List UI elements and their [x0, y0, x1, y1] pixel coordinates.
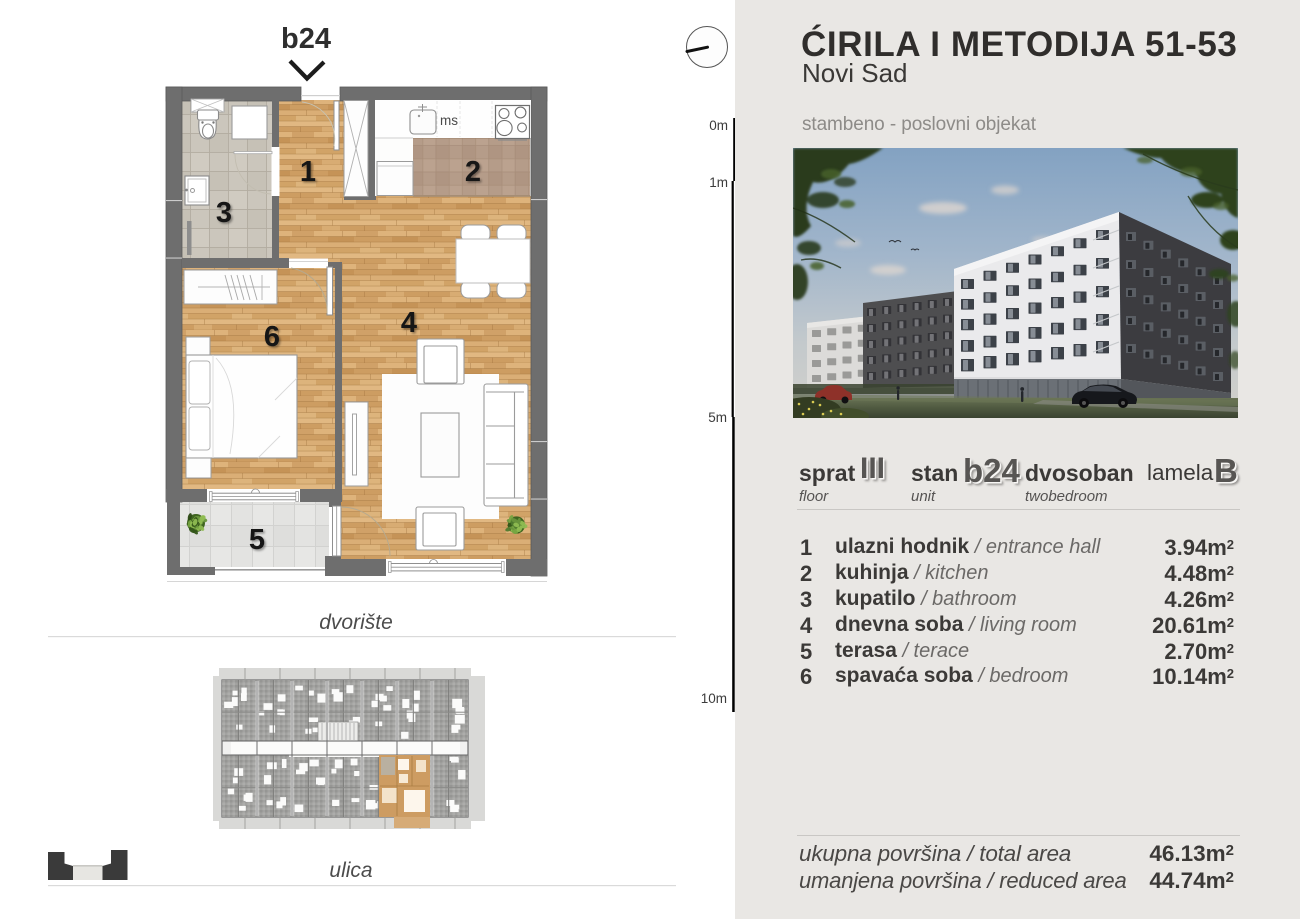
svg-text:dvorište: dvorište — [319, 611, 393, 634]
svg-text:3: 3 — [216, 197, 232, 229]
svg-text:ulica: ulica — [329, 859, 372, 882]
svg-text:ms: ms — [440, 113, 458, 128]
svg-text:4: 4 — [401, 307, 417, 339]
svg-text:5: 5 — [249, 524, 265, 556]
svg-text:6: 6 — [264, 321, 280, 353]
svg-text:5m: 5m — [708, 410, 727, 425]
svg-text:b24: b24 — [281, 23, 331, 55]
svg-text:0m: 0m — [709, 118, 728, 133]
svg-text:2: 2 — [465, 156, 481, 188]
svg-text:1m: 1m — [709, 175, 728, 190]
svg-text:1: 1 — [300, 156, 316, 188]
svg-text:10m: 10m — [701, 691, 727, 706]
